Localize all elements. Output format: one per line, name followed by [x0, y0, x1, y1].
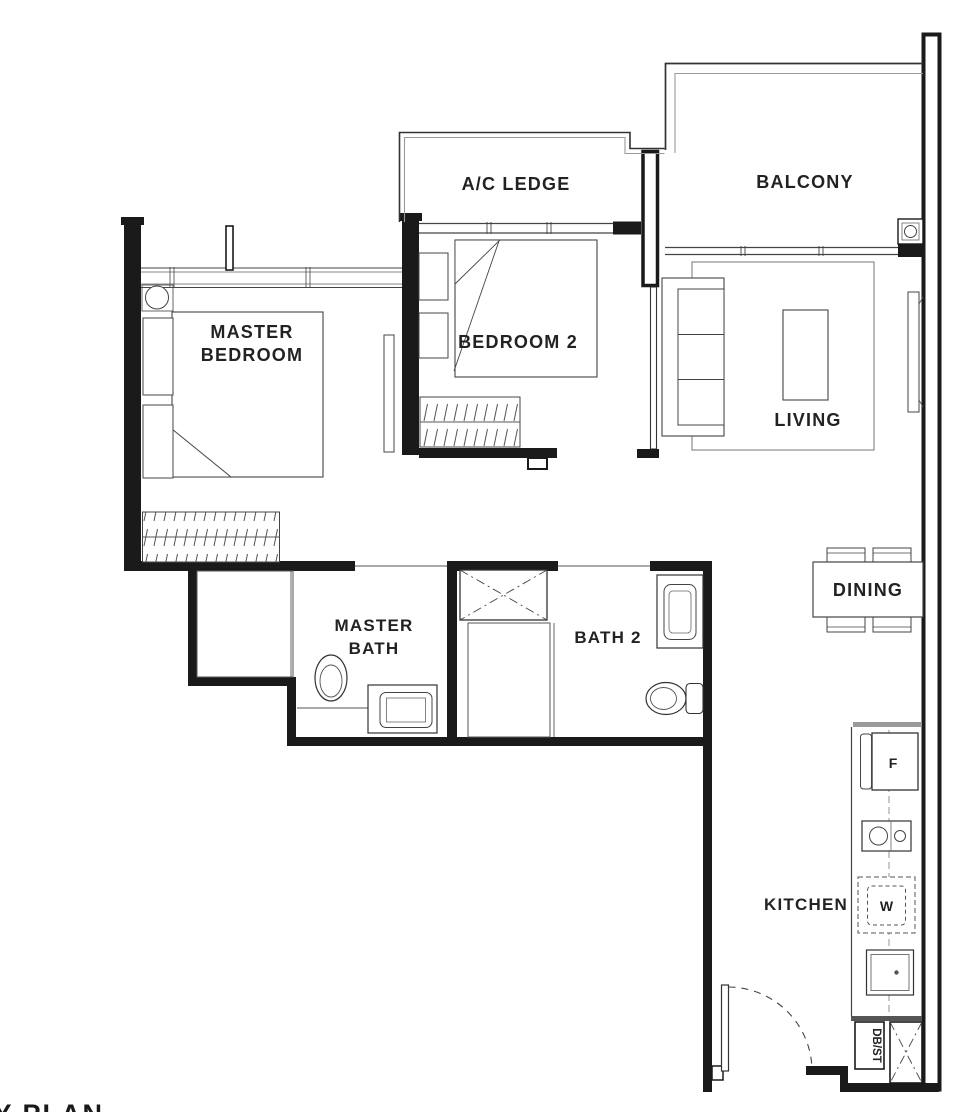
entry-door-swing-arc	[729, 987, 813, 1069]
master-side-table	[143, 405, 173, 478]
service-shaft	[460, 570, 547, 620]
wall-master-left	[124, 217, 141, 569]
tv-console	[908, 292, 919, 412]
db-st-label: DB/ST	[870, 1028, 882, 1063]
room-label-bedroom2: BEDROOM 2	[458, 332, 578, 352]
fridge-door	[861, 734, 872, 789]
master-window-mullion	[226, 226, 233, 270]
wall-bedroom2-bottom	[419, 448, 557, 458]
wall-entry-threshold	[806, 1066, 848, 1075]
wall-masterbath-step	[188, 677, 296, 686]
sofa-cushions	[678, 289, 724, 425]
bedroom2-window-black-seg	[613, 222, 641, 235]
room-label-kitchen: KITCHEN	[764, 895, 848, 914]
key-plan-label: KEY PLAN	[0, 1099, 104, 1112]
master-bedroom: MASTER BEDROOM	[142, 285, 394, 562]
kitchen-sink-drain	[894, 970, 898, 974]
wall-right-exterior	[924, 35, 940, 1090]
room-label-living: LIVING	[774, 410, 841, 430]
living-room: LIVING	[662, 262, 923, 450]
balcony-wall-outer	[666, 64, 924, 151]
master-bath-shower	[197, 571, 293, 677]
kitchen-counter-end	[851, 1016, 922, 1021]
bedroom2-side-table	[419, 253, 448, 300]
wall-masterbath-left	[188, 561, 197, 686]
room-label-master-bedroom-line2: BEDROOM	[201, 345, 303, 365]
ac-ledge: A/C LEDGE	[400, 133, 665, 223]
fridge-label: F	[889, 755, 898, 771]
wall-bottom-right	[840, 1083, 939, 1092]
dining-area: DINING	[813, 548, 923, 632]
room-label-dining: DINING	[833, 580, 903, 600]
wall-master-left-cap	[121, 217, 144, 225]
wall-bath-top-right	[650, 561, 712, 571]
wall-bedroom-divider	[402, 213, 419, 455]
master-bath: MASTER BATH	[197, 571, 437, 733]
bath2-shower	[468, 623, 550, 737]
kitchen: F W DB/ST KITCHEN	[764, 722, 922, 1083]
kitchen-counter-top-edge	[853, 722, 922, 727]
wall-bath-stub	[447, 561, 457, 746]
wall-bedroom-divider-cap	[399, 213, 422, 221]
coffee-table	[783, 310, 828, 400]
wall-corridor-left	[703, 561, 712, 1092]
dining-chair	[873, 616, 911, 632]
entry-door-leaf	[722, 985, 729, 1071]
lamp-icon	[146, 286, 169, 309]
room-label-master-bath-line2: BATH	[349, 639, 400, 658]
master-side-table	[143, 318, 173, 395]
bedroom2: BEDROOM 2	[419, 240, 597, 447]
dining-chair	[827, 616, 865, 632]
footer: KEY PLAN	[0, 1099, 104, 1112]
washer-label: W	[880, 898, 894, 914]
entry	[722, 985, 813, 1071]
floor-plan-page: A/C LEDGE BALCONY	[0, 0, 974, 1112]
room-label-bath2: BATH 2	[574, 628, 641, 647]
wall-bedroom2-notch	[528, 458, 547, 469]
bedroom2-side-table	[419, 313, 448, 358]
master-door-panel	[384, 335, 394, 452]
balcony: BALCONY	[665, 64, 923, 258]
wall-bath-bottom	[287, 737, 712, 746]
balcony-wall-black-seg	[898, 244, 923, 257]
room-label-balcony: BALCONY	[756, 172, 853, 192]
room-label-master-bath-line1: MASTER	[335, 616, 414, 635]
bath2: BATH 2	[460, 570, 703, 737]
bath2-toilet-tank	[686, 684, 703, 714]
bedroom2-sliding-door	[651, 287, 657, 449]
wall-masterbath-step-vert	[287, 677, 296, 741]
kitchen-sink	[867, 950, 914, 995]
floor-plan-drawing: A/C LEDGE BALCONY	[0, 0, 974, 1112]
wall-bedroom2-living-column	[643, 152, 658, 286]
room-label-master-bedroom-line1: MASTER	[210, 322, 293, 342]
room-label-ac-ledge: A/C LEDGE	[462, 174, 571, 194]
wall-column-foot	[637, 449, 659, 458]
balcony-wall-inner	[675, 74, 923, 154]
